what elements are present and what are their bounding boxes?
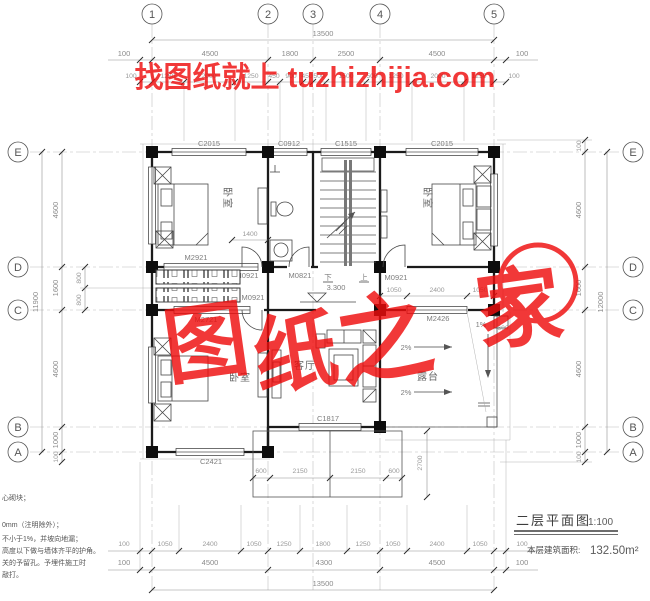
watermark-char-1: 图: [158, 291, 254, 396]
door-label-m2921: M2921: [185, 253, 208, 262]
dim-label: 100: [118, 558, 131, 567]
dim-label: 1800: [282, 49, 299, 58]
dim-label: 1050: [157, 541, 172, 548]
bed-top-right: [381, 166, 491, 250]
dim-label: 13500: [313, 579, 334, 588]
dim-label: 11900: [31, 292, 40, 312]
balcony-bottom: 600 2150 2150 600 2700: [250, 428, 430, 500]
door-window-m2921: [164, 264, 258, 271]
watermarks: 找图纸就上 tuzhizhijia.com 图 纸 之 家: [135, 60, 576, 406]
dim-label: 4600: [574, 361, 583, 378]
window-c2015-right: [406, 149, 478, 156]
dim-label: 800: [76, 272, 83, 284]
dim-label: 1050: [472, 541, 487, 548]
room-label-bedroom-tl: 卧室: [221, 187, 234, 209]
floor-plan-svg: 1 2 3 4 5 E D C B A E D C B A 13500 100 …: [0, 0, 650, 601]
drawing-title: 二层平面图: [516, 513, 591, 528]
grid-bubble-B-right: B: [629, 422, 636, 434]
dim-label: 4600: [51, 202, 60, 219]
drawing-sheet: 1 2 3 4 5 E D C B A E D C B A 13500 100 …: [0, 0, 650, 601]
window-c0912: [271, 149, 307, 156]
window-left-upper: [149, 167, 156, 244]
note-line: 心砌块；: [2, 493, 30, 502]
area-value: 132.50m²: [590, 545, 639, 557]
dim-label: 4500: [429, 49, 446, 58]
grid-bubble-1: 1: [149, 9, 155, 21]
note-line: 高度以下做与墙体齐平的护角。: [2, 546, 100, 555]
notes: 心砌块； 0mm（注明除外）； 不小于1%，并坡向地漏； 高度以下做与墙体齐平的…: [2, 493, 100, 579]
dim-label: 4500: [429, 558, 446, 567]
dim-label: 1800: [315, 541, 330, 548]
grid-bubble-A: A: [14, 447, 22, 459]
dim-label: 100: [118, 541, 130, 548]
window-label-c2421: C2421: [200, 457, 222, 466]
note-line: 不小于1%，并坡向地漏；: [2, 534, 82, 543]
watermark-char-2: 纸: [248, 301, 344, 406]
level-value: 3.300: [327, 283, 346, 292]
dim-label: 2400: [429, 541, 444, 548]
door-label-m0921b: M0921: [242, 293, 265, 302]
note-line: 敲打。: [2, 570, 23, 579]
dim-label: 2150: [292, 468, 307, 475]
bath-dim: 1400: [229, 231, 271, 243]
grid-bubble-4: 4: [377, 9, 383, 21]
dim-label: 1250: [355, 541, 370, 548]
dim-label: 100: [516, 49, 529, 58]
door-label-m2426: M2426: [427, 314, 450, 323]
stair-up-label: 上: [360, 273, 368, 282]
grid-bubble-2: 2: [265, 9, 271, 21]
grid-bubble-D-right: D: [629, 262, 637, 274]
dims-left: 11900 4600 1600 4600 1000 100 800 800: [31, 149, 156, 465]
dim-label: 800: [76, 294, 83, 306]
window-c2421: [176, 449, 244, 456]
watermark-top: 找图纸就上 tuzhizhijia.com: [135, 60, 496, 94]
window-c1817: [299, 424, 361, 431]
dim-label: 2700: [417, 455, 424, 470]
dim-label: 1050: [385, 541, 400, 548]
window-c2015-left: [172, 149, 246, 156]
dim-label: 1050: [246, 541, 261, 548]
drawing-scale: 1:100: [588, 517, 613, 528]
watermark-char-4: 家: [470, 256, 569, 363]
grid-bubble-A-right: A: [629, 447, 637, 459]
door-label-m0821: M0821: [289, 271, 312, 280]
bathroom: 1400: [229, 165, 293, 261]
grid-bubbles-top: 1 2 3 4 5: [142, 4, 504, 24]
title-block: 二层平面图 1:100 本层建筑面积: 132.50m²: [514, 513, 639, 557]
dim-label: 4500: [202, 49, 219, 58]
dim-label: 100: [576, 140, 583, 152]
dim-label: 600: [388, 468, 400, 475]
dim-label: 2400: [429, 287, 444, 294]
dim-label: 1600: [51, 280, 60, 297]
dim-label: 1000: [51, 432, 60, 449]
dim-label: 4300: [316, 558, 333, 567]
dim-label: 2150: [350, 468, 365, 475]
dim-label: 2500: [338, 49, 355, 58]
dim-label: 1250: [276, 541, 291, 548]
window-label-c0912: C0912: [278, 139, 300, 148]
grid-bubble-3: 3: [310, 9, 316, 21]
note-line: 0mm（注明除外）；: [2, 520, 63, 529]
grid-bubble-D: D: [14, 262, 22, 274]
grid-bubble-E: E: [14, 147, 21, 159]
dim-label: 100: [53, 451, 60, 463]
note-line: 关的予留孔。予埋件施工时: [2, 558, 86, 567]
dims-bottom: 100 1050 2400 1050 1250 1800 1250 1050 2…: [108, 440, 538, 593]
dim-label: 4500: [202, 558, 219, 567]
window-label-c2015b: C2015: [431, 139, 453, 148]
window-right-bedroom: [491, 174, 498, 246]
dim-label: 100: [576, 451, 583, 463]
grid-bubbles-left: E D C B A: [8, 142, 28, 462]
dim-label: 600: [255, 468, 267, 475]
dim-label: 13500: [313, 29, 334, 38]
dim-label: 4600: [51, 361, 60, 378]
grid-bubble-5: 5: [491, 9, 497, 21]
area-label: 本层建筑面积:: [527, 545, 580, 555]
door-label-m0921c: M0921: [385, 273, 408, 282]
window-c1515: [321, 149, 371, 156]
dim-label: 1400: [242, 231, 257, 238]
stairs: 下 上 3.300: [300, 158, 376, 302]
bed-top-left: [154, 167, 208, 248]
grid-bubble-C-right: C: [629, 305, 637, 317]
dim-label: 12000: [596, 292, 605, 313]
window-label-c2015: C2015: [198, 139, 220, 148]
grid-bubble-C: C: [14, 305, 22, 317]
stair-down-label: 下: [324, 273, 332, 282]
grid-bubbles-right: E D C B A: [623, 142, 643, 462]
dim-label: 4600: [574, 202, 583, 219]
dim-label: 2400: [202, 541, 217, 548]
dim-label: 100: [118, 49, 131, 58]
room-label-bedroom-tr: 卧室: [421, 187, 434, 209]
window-label-c1515: C1515: [335, 139, 357, 148]
grid-bubble-E-right: E: [629, 147, 636, 159]
grid-bubble-B: B: [14, 422, 21, 434]
dim-label: 1000: [574, 432, 583, 449]
dim-label: 100: [516, 558, 529, 567]
window-label-c1817: C1817: [317, 414, 339, 423]
dim-label: 100: [508, 73, 520, 80]
watermark-char-3: 之: [328, 279, 441, 401]
